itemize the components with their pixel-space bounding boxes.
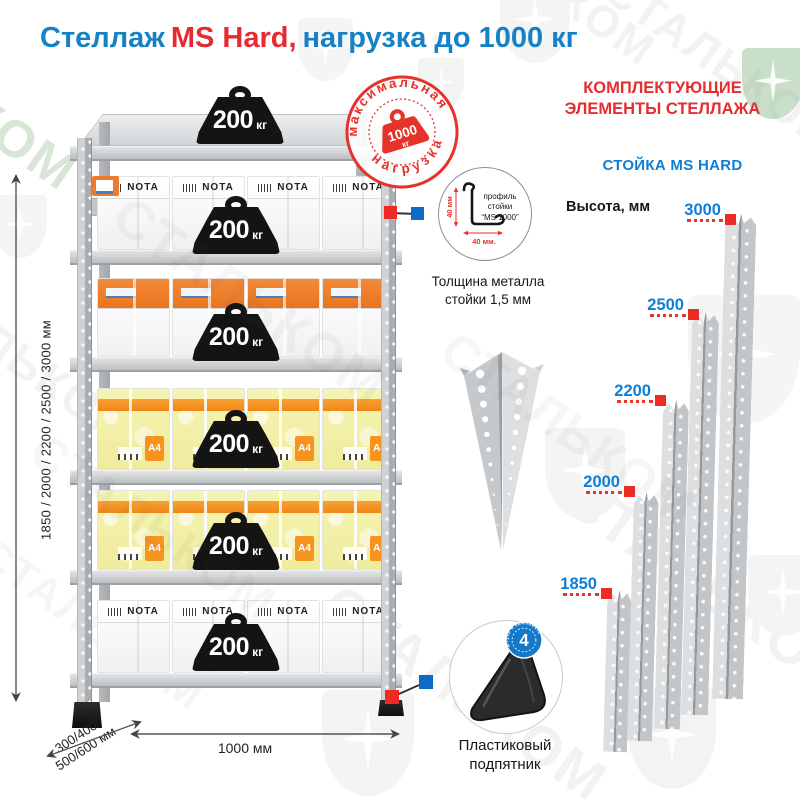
load-unit: кг [252,442,263,456]
load-badge: 200кг [192,303,280,361]
box-strap [283,279,286,356]
post-pointer-line [650,314,686,317]
post-pointer-line [563,593,599,596]
post-pointer-line [617,400,653,403]
box-label [331,288,361,298]
paper-size-label: A4 [145,436,164,461]
profile-diagram-circle: 40 мм 40 мм. профиль стойки “MS 1000” [437,166,533,262]
thickness-line2: стойки 1,5 мм [408,291,568,309]
post-pointer-line [586,491,622,494]
thickness-note: Толщина металла стойки 1,5 мм [408,273,568,308]
box-strap [137,177,139,249]
post-pointer-marker [624,486,635,497]
load-value: 200 [209,532,249,561]
post-height-label: 3000 [643,201,721,220]
page-title: СтеллажMS Hard,нагрузка до 1000 кг [40,22,578,55]
barcode-icon [108,608,123,616]
barcode-icon [333,184,348,192]
upright-post [603,590,632,753]
load-value: 200 [209,216,249,245]
title-part-2: MS Hard, [171,22,297,54]
height-axis-label: Высота, мм [566,199,650,215]
box-label [256,288,286,298]
profile-caption-3: “MS 1000” [481,213,519,222]
post-height-label: 2000 [542,473,620,492]
box-brand-label: NOTA [352,606,384,617]
barcode-icon [343,547,367,560]
width-label: 1000 мм [175,740,315,756]
weight-icon: 200кг [192,624,280,671]
thickness-line1: Толщина металла [408,273,568,291]
box-brand-label: NOTA [127,606,159,617]
profile-caption-1: профиль [483,192,516,201]
load-unit: кг [252,544,263,558]
weight-icon: 200кг [196,97,284,144]
weight-icon: 200кг [192,523,280,570]
profile-caption-2: стойки [488,202,512,211]
post-height-label: 1850 [519,575,597,594]
shelving-infographic: СТАЛЬКОМСТАЛЬКОМСТАЛЬКОМСТАЛЬКОМСТАЛЬКОМ… [0,0,800,800]
foot-caption-line1: Пластиковый [420,737,590,756]
box-stripe [98,501,169,513]
load-badge: 200кг [192,512,280,570]
carton-box: A4 [97,490,170,570]
corner-post-3d-icon [450,344,554,558]
weight-icon: 200кг [192,421,280,468]
components-heading-line1: КОМПЛЕКТУЮЩИЕ [535,78,790,99]
box-strap [362,601,364,672]
profile-callout-marker-red [384,206,397,219]
post-pointer-marker [688,309,699,320]
load-value: 200 [209,633,249,662]
barcode-icon [258,184,273,192]
badge-count: 4 [519,631,529,650]
shelf-label-holder [92,176,119,196]
load-badge: 200кг [192,196,280,254]
load-badge: 200кг [192,410,280,468]
post-pointer-marker [725,214,736,225]
carton-box: A4 [97,388,170,470]
barcode-icon [183,184,198,192]
box-brand-label: NOTA [277,182,309,193]
load-value: 200 [213,106,253,135]
upright-post [627,492,659,742]
profile-dim-horizontal: 40 мм. [472,237,496,246]
post-height-label: 2500 [606,296,684,315]
profile-callout-marker-blue [411,207,424,220]
barcode-icon [118,447,142,460]
load-unit: кг [252,228,263,242]
box-brand-label: NOTA [277,606,309,617]
foot-caption: Пластиковый подпятник [420,737,590,775]
load-unit: кг [252,645,263,659]
box-strap [358,279,361,356]
height-options-label: 1850 / 2000 / 2200 / 2500 / 3000 мм [39,320,54,540]
foot-callout-marker-red [385,690,399,704]
shelf [70,570,402,585]
weight-icon: 200кг [192,314,280,361]
rack-post-front-left [77,138,92,712]
load-value: 200 [209,323,249,352]
post-section-title: СТОЙКА MS HARD [560,157,785,174]
box-label [181,288,211,298]
paper-size-label: A4 [295,436,314,461]
shield-watermark-icon [748,555,800,636]
barcode-icon [333,608,348,616]
load-value: 200 [209,430,249,459]
carton-box: NOTA [97,600,170,673]
paper-size-label: A4 [295,536,314,561]
box-label [106,288,136,298]
box-strap [287,177,289,249]
load-badge: 200кг [196,86,284,144]
post-pointer-line [687,219,723,222]
post-height-label: 2200 [573,382,651,401]
shelf [70,470,402,485]
title-part-1: Стеллаж [40,22,165,54]
box-strap [137,601,139,672]
box-stripe [98,399,169,411]
box-brand-label: NOTA [127,182,159,193]
load-badge: 200кг [192,613,280,671]
shield-watermark-icon [0,195,47,258]
foot-caption-line2: подпятник [420,756,590,775]
box-strap [287,601,289,672]
weight-icon: 200кг [192,207,280,254]
carton-box [97,278,170,357]
post-pointer-marker [655,395,666,406]
title-part-3: нагрузка до 1000 кг [303,22,578,54]
paper-size-label: A4 [145,536,164,561]
shelf [70,673,402,688]
load-unit: кг [256,118,267,132]
box-brand-label: NOTA [202,182,234,193]
box-strap [133,279,136,356]
barcode-icon [343,447,367,460]
upright-post [712,214,757,700]
load-unit: кг [252,335,263,349]
box-lid: NOTA [98,601,169,623]
post-pointer-marker [601,588,612,599]
barcode-icon [118,547,142,560]
foot-callout-marker-blue [419,675,433,689]
components-heading: КОМПЛЕКТУЮЩИЕ ЭЛЕМЕНТЫ СТЕЛЛАЖА [535,78,790,119]
profile-dim-vertical: 40 мм [445,196,454,218]
foot-count-badge: штуки в комплекте 4 [505,621,543,659]
components-heading-line2: ЭЛЕМЕНТЫ СТЕЛЛАЖА [535,99,790,120]
